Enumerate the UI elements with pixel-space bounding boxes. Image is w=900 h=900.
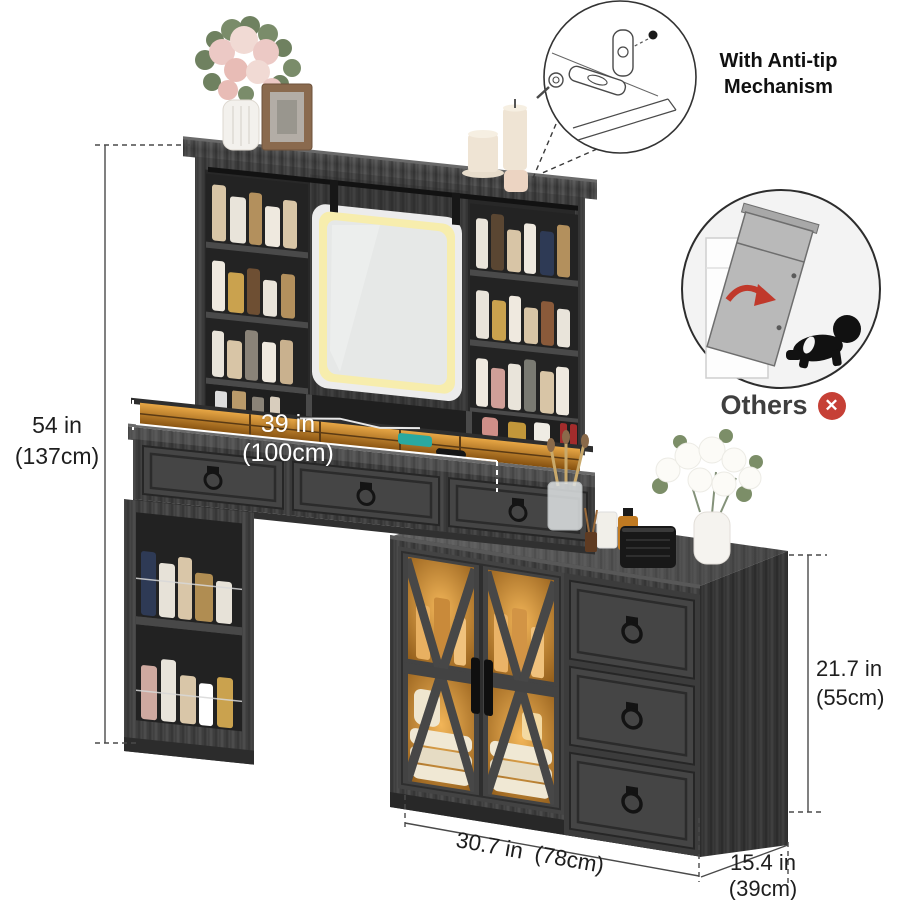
hutch-right-shelves (470, 203, 578, 424)
dim-total-height-in: 54 in (7, 410, 107, 441)
anti-tip-callout-title: With Anti-tip Mechanism (686, 48, 871, 100)
door-handle (471, 657, 480, 714)
product-dimension-diagram: With Anti-tip Mechanism Others ✕ 54 in (… (0, 0, 900, 900)
dim-total-height-cm: (137cm) (7, 441, 107, 472)
vanity-illustration (0, 0, 900, 900)
anti-tip-bracket-illustration (537, 1, 696, 153)
hutch-left-shelves (206, 174, 308, 395)
dim-cabinet-height-label: 21.7 in (55cm) (816, 654, 900, 712)
leader-line (533, 124, 556, 178)
dim-desktop-width-in: 39 in (198, 410, 378, 439)
dim-cabinet-depth-in: 15.4 in (713, 850, 813, 876)
dim-cabinet-height-cm: (55cm) (816, 683, 900, 712)
dim-cabinet-depth-label: 15.4 in (39cm) (713, 850, 813, 900)
speaker (620, 526, 676, 568)
dim-cabinet-depth-cm: (39cm) (713, 876, 813, 900)
barn-doors (398, 546, 564, 815)
anti-tip-line1: With Anti-tip (686, 48, 871, 74)
side-cabinet-right-face (700, 551, 788, 857)
dim-total-height-label: 54 in (137cm) (7, 410, 107, 472)
dim-desktop-width-label: 39 in (100cm) (198, 410, 378, 468)
dim-cabinet-height-in: 21.7 in (816, 654, 900, 683)
others-caption: Others ✕ (688, 390, 878, 421)
cabinet-drawers (564, 573, 700, 857)
barn-door-right (482, 565, 560, 809)
leader-line (540, 149, 597, 174)
red-x-icon: ✕ (818, 392, 846, 420)
tipping-dresser-child-illustration (682, 190, 880, 388)
side-cabinet-front (390, 535, 700, 857)
left-storage-tower (124, 499, 254, 765)
door-handle (484, 659, 493, 716)
barn-door-left (402, 552, 480, 796)
others-label: Others (720, 390, 807, 421)
picture-frame (262, 84, 312, 150)
anti-tip-line2: Mechanism (686, 74, 871, 100)
dim-desktop-width-cm: (100cm) (198, 439, 378, 468)
